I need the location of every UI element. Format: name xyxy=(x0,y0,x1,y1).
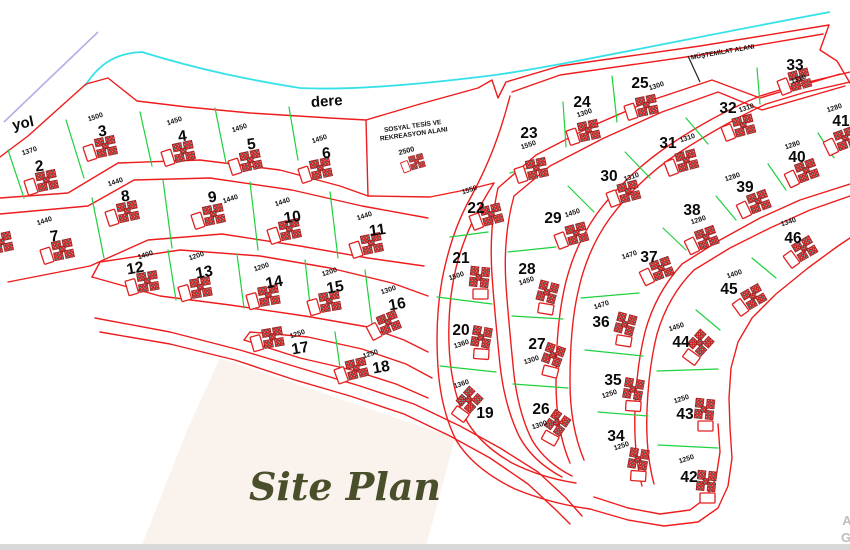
building-icon xyxy=(468,266,492,301)
lot-number: 46 xyxy=(784,230,802,247)
lot-34: 341250 xyxy=(607,428,650,483)
lot-36: 361470 xyxy=(592,300,638,349)
site-plan-page: 2137031500414505145061450714408144091440… xyxy=(0,0,850,550)
bottom-border-strip xyxy=(0,544,850,550)
lot-number: 2 xyxy=(34,158,45,176)
lot-number: 45 xyxy=(720,281,738,298)
lot-number: 31 xyxy=(659,135,677,152)
lot-38: 381280 xyxy=(682,202,720,255)
building-icon xyxy=(532,280,560,317)
lot-number: 11 xyxy=(368,221,387,240)
lot-9: 91440 xyxy=(190,188,239,229)
site-plan-title: Site Plan xyxy=(249,464,441,509)
lot-29: 291450 xyxy=(544,208,589,250)
building-icon xyxy=(160,140,196,167)
lot-number: 5 xyxy=(246,135,257,153)
lot-24: 241300 xyxy=(565,94,601,146)
lot-19: 191360 xyxy=(447,379,494,424)
lot-number: 9 xyxy=(207,188,218,206)
lot-area-label: 1250 xyxy=(678,454,695,466)
lot-number: 20 xyxy=(452,322,469,339)
lot-17: 171250 xyxy=(249,326,310,358)
lot-20: 201360 xyxy=(452,322,493,361)
lot-number: 16 xyxy=(387,295,407,315)
lot-42: 421250 xyxy=(678,454,718,505)
lot-37: 371470 xyxy=(621,249,675,286)
lot-area-label: 1310 xyxy=(679,133,696,145)
building-icon xyxy=(468,325,494,361)
lot-number: 44 xyxy=(672,334,690,351)
lot-number: 30 xyxy=(600,168,617,185)
lot-area-label: 1440 xyxy=(274,197,291,209)
lot-area-label: 1500 xyxy=(448,271,465,283)
lot-number: 40 xyxy=(788,149,805,166)
lot-area-label: 1470 xyxy=(621,250,638,262)
facility-area-label: 2500 xyxy=(397,144,415,157)
row-line xyxy=(366,120,368,196)
lot-area-label: 1450 xyxy=(166,116,183,128)
lot-number: 42 xyxy=(680,469,697,486)
lot-number: 35 xyxy=(604,372,622,389)
building-icon xyxy=(0,231,14,258)
lot-23: 231550 xyxy=(513,125,549,184)
lot-number: 37 xyxy=(640,249,657,266)
creek-label: dere xyxy=(310,92,343,111)
lot-area-label: 1200 xyxy=(188,251,205,263)
lot-area-label: 1470 xyxy=(593,300,610,312)
lot-area-label: 1450 xyxy=(231,123,248,135)
lot-5: 51450 xyxy=(227,123,263,176)
lot-area-label: 1440 xyxy=(222,194,239,206)
lot-area-label: 1300 xyxy=(380,285,397,297)
road-edge-line xyxy=(4,32,98,122)
lot-43: 431250 xyxy=(673,394,716,433)
lot-area-label: 1440 xyxy=(36,216,53,228)
building-icon xyxy=(399,153,425,173)
building-icon xyxy=(693,398,717,433)
lot-44: 441450 xyxy=(668,322,715,367)
site-plan-canvas: 2137031500414505145061450714408144091440… xyxy=(0,0,850,550)
lot-number: 41 xyxy=(832,113,850,130)
watermark-letter-1: A xyxy=(842,513,850,528)
lot-area-label: 1450 xyxy=(311,134,328,146)
lot-27: 271300 xyxy=(523,336,567,380)
lot-number: 13 xyxy=(194,263,214,283)
lot-10: 101440 xyxy=(266,197,302,245)
building-icon xyxy=(821,126,850,156)
lot-11: 111440 xyxy=(348,211,387,259)
lot-8: 81440 xyxy=(104,177,140,227)
lot-number: 6 xyxy=(321,144,332,162)
lot-12: 121400 xyxy=(124,250,160,296)
lot-3: 31500 xyxy=(82,112,118,162)
lot-number: 12 xyxy=(125,259,145,279)
lot-number: 15 xyxy=(325,278,345,298)
lot-number: 36 xyxy=(592,314,610,331)
lot-number: 28 xyxy=(518,261,536,278)
lot-number: 23 xyxy=(520,125,538,142)
lot-4: 41450 xyxy=(160,116,196,167)
lot-number: 17 xyxy=(290,339,310,359)
lot-number: 33 xyxy=(786,57,804,74)
lot-area-label: 1400 xyxy=(726,269,743,281)
watermark-letter-2: G xyxy=(841,530,850,545)
lot-area-label: 1340 xyxy=(780,217,797,229)
lot-area-label: 1300 xyxy=(531,420,548,432)
lot-number: 3 xyxy=(97,122,108,140)
building-icon xyxy=(249,326,285,352)
lot-number: 39 xyxy=(736,179,754,196)
building-icon xyxy=(695,470,719,505)
lot-13: 131200 xyxy=(177,251,215,302)
lot-area-label: 1300 xyxy=(523,355,540,367)
ring-road-line xyxy=(437,96,590,509)
building-icon xyxy=(190,203,226,230)
lot-number: 26 xyxy=(532,401,550,418)
lot-number: 22 xyxy=(467,200,484,217)
building-icon xyxy=(227,149,263,176)
building-icon xyxy=(333,357,370,385)
lot-41: 411280 xyxy=(821,103,850,157)
building-icon xyxy=(720,114,757,142)
lot-35: 351250 xyxy=(601,372,646,413)
lot-area-label: 1400 xyxy=(137,250,154,262)
lot-area-label: 1450 xyxy=(564,208,581,220)
lot-area-label: 1500 xyxy=(87,112,104,124)
building-icon xyxy=(364,310,402,341)
lot-area-label: 1200 xyxy=(253,262,270,274)
building-icon xyxy=(682,225,720,255)
lot-26: 261300 xyxy=(531,401,572,447)
lot-33: 331310 xyxy=(776,57,813,96)
lot-14: 141200 xyxy=(245,262,285,310)
lot-31: 311310 xyxy=(659,133,699,177)
road-label: yol xyxy=(11,113,36,134)
lot-area-label: 1200 xyxy=(321,267,338,279)
lot-number: 25 xyxy=(631,75,649,92)
lot-number: 18 xyxy=(371,358,391,378)
lot-7: 71440 xyxy=(36,216,75,265)
lot-area-label: 1250 xyxy=(673,394,690,406)
lot-area-label: 1250 xyxy=(601,389,618,401)
lot-2: 21370 xyxy=(21,146,59,196)
lot-area-label: 1440 xyxy=(356,211,373,223)
lot-21: 211500 xyxy=(448,250,491,301)
outer-boundary-apex xyxy=(820,25,850,83)
lot-number: 10 xyxy=(283,208,302,227)
lot-number: 32 xyxy=(719,100,736,117)
outbuilding-area-label: MÜŞTEMİLAT ALANI xyxy=(690,41,755,61)
lot-number: 29 xyxy=(544,210,562,227)
building-icon xyxy=(620,377,646,413)
lot-number: 4 xyxy=(177,127,188,145)
lot-number: 27 xyxy=(528,336,545,353)
lot-number: 43 xyxy=(676,406,694,423)
lot-number: 7 xyxy=(49,228,60,246)
lot-area-label: 1450 xyxy=(668,322,685,334)
lot-15: 151200 xyxy=(306,267,346,316)
lot-40: 401280 xyxy=(782,140,820,189)
building-icon xyxy=(623,94,659,121)
lot-area-label: 1550 xyxy=(461,185,478,197)
lot-area-label: 1360 xyxy=(453,339,470,351)
lot-28: 281450 xyxy=(518,261,560,316)
lot-area-label: 1370 xyxy=(21,146,38,158)
cream-ground-patch xyxy=(140,358,455,550)
building-icon xyxy=(663,149,700,177)
lot-6: 61450 xyxy=(297,134,333,184)
lot-area-label: 1300 xyxy=(648,81,665,93)
building-icon xyxy=(513,157,549,184)
lot-number: 14 xyxy=(264,273,284,293)
lot-46: 461340 xyxy=(780,217,819,269)
lot-number: 19 xyxy=(476,405,494,422)
lot-number: 21 xyxy=(452,250,470,267)
building-icon xyxy=(610,312,638,349)
lot-number: 8 xyxy=(120,187,131,205)
lot-39: 391280 xyxy=(724,172,772,220)
